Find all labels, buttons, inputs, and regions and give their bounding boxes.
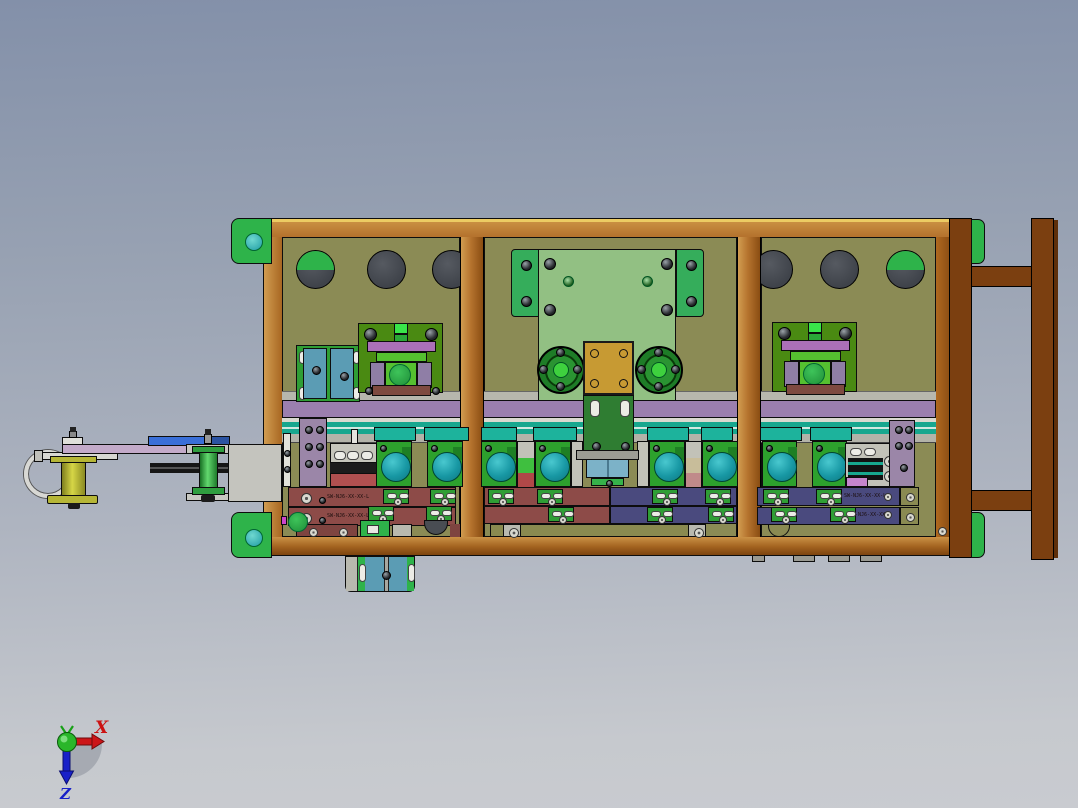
screw: [521, 260, 532, 271]
clamp-indicator-bright: [394, 323, 408, 334]
screw: [782, 516, 790, 524]
mount-square-olive: [900, 487, 919, 506]
panel-hole: [886, 250, 925, 289]
screw: [312, 366, 321, 375]
green-roller-front[interactable]: [288, 512, 308, 532]
screw: [661, 304, 673, 316]
spool-yellow-body[interactable]: [61, 462, 86, 497]
spacer-pink: [686, 473, 701, 488]
actuator-block[interactable]: [845, 443, 894, 487]
screw: [316, 426, 324, 434]
clamp-crossbar-purple[interactable]: [367, 341, 436, 352]
bracket-hole: [245, 529, 263, 547]
latch-handle: [850, 448, 862, 456]
clamp-tee-bar[interactable]: [376, 352, 427, 362]
screw: [485, 445, 492, 452]
screw-plate[interactable]: [537, 489, 563, 504]
roller-bearing: [540, 452, 570, 482]
slot: [408, 564, 415, 582]
screw: [499, 498, 507, 506]
roller-block[interactable]: [535, 441, 571, 487]
spacer-tan: [686, 458, 701, 473]
slot: [620, 400, 630, 417]
edge-strip: [283, 433, 291, 487]
roller-bearing: [432, 452, 462, 482]
screw: [339, 528, 348, 537]
roller-bearing: [381, 452, 411, 482]
screw: [654, 382, 663, 391]
screw: [671, 365, 680, 374]
rod-highlight: [150, 467, 230, 469]
rail-pad: [424, 427, 469, 441]
spacer-gray: [637, 441, 649, 487]
roller-bearing: [817, 452, 847, 482]
screw: [305, 460, 313, 468]
screw-plate[interactable]: [816, 489, 842, 504]
panel-hole: [367, 250, 406, 289]
screw-plate[interactable]: [488, 489, 514, 504]
flange-bearing-right[interactable]: [635, 346, 683, 394]
screw: [573, 365, 582, 374]
spacer-red: [518, 473, 534, 488]
corner-tab-top-right[interactable]: [971, 219, 985, 264]
foot-tab: [752, 556, 765, 562]
screw: [548, 498, 556, 506]
bottom-beam-olive[interactable]: [490, 524, 706, 537]
screw: [284, 450, 291, 457]
screw: [719, 516, 727, 524]
screw: [556, 382, 565, 391]
carriage-cap: [346, 557, 358, 591]
roller-bearing: [767, 452, 797, 482]
screw: [895, 442, 903, 450]
plate-hole: [590, 349, 599, 358]
screw: [284, 466, 291, 473]
rail-pad: [481, 427, 517, 441]
screw: [441, 498, 449, 506]
screw: [340, 372, 349, 381]
spacer-gray: [571, 441, 583, 487]
base-block-maroon: [450, 524, 460, 537]
screw: [686, 260, 697, 271]
purple-mount-block-left[interactable]: [299, 418, 327, 487]
screw: [778, 327, 791, 340]
center-blue-block[interactable]: [586, 459, 629, 478]
screw: [425, 328, 438, 341]
roller-block[interactable]: [376, 441, 412, 487]
center-green-base[interactable]: [591, 478, 624, 486]
sphere-highlight: [61, 736, 68, 743]
roller-block[interactable]: [702, 441, 738, 487]
screw: [316, 443, 324, 451]
spool-nut: [68, 503, 80, 509]
screw: [309, 528, 318, 537]
screw: [900, 464, 908, 472]
screw: [663, 498, 671, 506]
engraved-part-number: SW-NJ6-XX-XX-L: [327, 513, 369, 520]
screw: [884, 511, 892, 519]
screw: [827, 498, 835, 506]
screw: [766, 445, 773, 452]
screw: [305, 443, 313, 451]
screw-plate[interactable]: [426, 506, 452, 521]
arm-screw-cap: [70, 427, 76, 432]
clamp-tee-bar[interactable]: [790, 351, 841, 361]
screw: [301, 493, 312, 504]
stand-post-near[interactable]: [949, 218, 972, 558]
screw-plate[interactable]: [548, 507, 574, 522]
frame-mullion-left[interactable]: [460, 237, 484, 537]
spacer-gray: [686, 442, 701, 458]
latch-red-block: [330, 473, 378, 487]
cad-viewport[interactable]: SW-NJ6-XX-XX-L SW-NJ6-XX-XX-L: [0, 0, 1078, 808]
roller-block[interactable]: [481, 441, 517, 487]
slot: [359, 564, 366, 582]
screw: [319, 517, 326, 524]
bar-hex-end: [34, 450, 43, 462]
spacer-green: [518, 458, 534, 473]
clamp-base-brown[interactable]: [372, 385, 431, 396]
screw-plate[interactable]: [705, 489, 731, 504]
screw: [839, 327, 852, 340]
motor-stripe: [848, 472, 883, 475]
screw: [661, 258, 673, 270]
screw-plate[interactable]: [652, 489, 678, 504]
screw: [431, 445, 438, 452]
plate-window: [367, 525, 379, 534]
roller-bearing: [707, 452, 737, 482]
screw: [539, 365, 548, 374]
screw: [706, 445, 713, 452]
corner-tab-bottom-right[interactable]: [971, 512, 985, 558]
panel-hole: [296, 250, 335, 289]
beam-cap-gray: [688, 524, 706, 537]
screw: [539, 445, 546, 452]
stand-post-far[interactable]: [1031, 218, 1054, 560]
screw-plate[interactable]: [647, 507, 673, 522]
x-axis-label: X: [94, 718, 109, 738]
screw: [365, 387, 373, 395]
spacer-stack: [685, 441, 702, 487]
motor-stripe: [848, 462, 883, 465]
green-spool-flange-bottom: [192, 487, 225, 495]
screw: [556, 348, 565, 357]
green-spool-nut: [201, 495, 215, 502]
arm-screw-shaft: [69, 431, 77, 438]
spacer-stack: [517, 441, 535, 487]
foot-tab: [828, 556, 850, 562]
screw: [716, 498, 724, 506]
screw: [686, 296, 697, 307]
screw: [319, 497, 326, 504]
roller-block[interactable]: [427, 441, 463, 487]
bracket-vertical[interactable]: [228, 444, 282, 502]
triad-origin-sphere: [58, 733, 77, 752]
clamp-crossbar-purple[interactable]: [781, 340, 850, 351]
foot-tab: [860, 556, 882, 562]
screw: [563, 276, 574, 287]
green-part-behind-hole: [887, 251, 924, 270]
screw: [544, 304, 556, 316]
engraved-part-number: SW-NJ6-XX-XX-L: [844, 493, 886, 500]
spool-screw-cap: [205, 429, 211, 435]
latch-handle: [361, 451, 373, 460]
screw: [841, 516, 849, 524]
green-spool-body[interactable]: [199, 452, 218, 489]
rail-pad: [760, 427, 802, 441]
flange-shaft: [553, 362, 569, 378]
stand-post-far-edge: [1054, 220, 1058, 558]
green-part-behind-hole: [297, 251, 334, 270]
screw: [394, 498, 402, 506]
screw: [509, 528, 519, 538]
guide-rod-black[interactable]: [150, 463, 230, 473]
plate-hole: [590, 379, 599, 388]
plate-hole: [619, 379, 628, 388]
base-block-gray: [392, 524, 412, 537]
screw: [895, 426, 903, 434]
screw: [364, 328, 377, 341]
screw: [642, 276, 653, 287]
screw: [305, 426, 313, 434]
screw-plate[interactable]: [383, 489, 409, 504]
clamp-base-brown[interactable]: [786, 384, 845, 395]
base-plate-green[interactable]: [360, 520, 390, 537]
magenta-part: [281, 516, 287, 525]
screw: [658, 516, 666, 524]
side-plate-right[interactable]: [676, 249, 704, 317]
purple-mount-block-right[interactable]: [889, 420, 915, 487]
frame-top-rail-shade: [264, 222, 954, 236]
foot-tab: [793, 556, 815, 562]
screw: [906, 493, 915, 502]
engraved-part-number: SW-NJ6-XX-XX-L: [327, 494, 369, 501]
screw: [938, 527, 947, 536]
latch-handle: [864, 448, 876, 456]
roller-bearing: [654, 452, 684, 482]
screw: [521, 296, 532, 307]
rail-pad: [374, 427, 416, 441]
violet-pad: [846, 477, 868, 487]
screw: [694, 528, 704, 538]
rail-carriage-bottom[interactable]: [345, 556, 415, 592]
panel-hole: [820, 250, 859, 289]
screw: [816, 445, 823, 452]
screw: [884, 493, 892, 501]
rail-pad: [810, 427, 852, 441]
screw: [382, 571, 391, 580]
screw: [380, 445, 387, 452]
flange-shaft: [651, 362, 667, 378]
screw: [559, 516, 567, 524]
stand-beam-bottom[interactable]: [971, 490, 1032, 511]
screw-plate[interactable]: [430, 489, 456, 504]
screw: [774, 498, 782, 506]
screw-plate[interactable]: [368, 506, 394, 521]
screw: [906, 513, 915, 522]
screw-plate[interactable]: [763, 489, 789, 504]
z-axis-label: Z: [59, 785, 72, 803]
screw-plate[interactable]: [771, 507, 797, 522]
screw: [606, 480, 613, 487]
screw: [432, 387, 440, 395]
mount-square-olive: [900, 507, 919, 525]
bracket-hole: [245, 233, 263, 251]
roller-block[interactable]: [649, 441, 685, 487]
flange-bearing-left[interactable]: [537, 346, 585, 394]
screw: [544, 258, 556, 270]
corner-bracket-bottom-left[interactable]: [231, 512, 272, 558]
clamp-roller-green[interactable]: [389, 364, 411, 386]
roller-bearing: [486, 452, 516, 482]
screw: [653, 445, 660, 452]
slot: [590, 400, 600, 417]
rail-pad: [701, 427, 733, 441]
screw: [316, 460, 324, 468]
side-plate-left[interactable]: [511, 249, 539, 317]
roller-block[interactable]: [762, 441, 797, 487]
latch-handle: [347, 451, 359, 460]
latch-handle: [334, 451, 346, 460]
stand-beam-top[interactable]: [971, 266, 1032, 287]
rail-pad: [647, 427, 689, 441]
spacer-gray: [518, 442, 534, 458]
rail-pad: [533, 427, 577, 441]
screw: [637, 365, 646, 374]
frame-bottom-rail[interactable]: [264, 537, 954, 555]
block-seam: [607, 460, 609, 477]
clamp-indicator-bright: [808, 322, 822, 333]
clamp-roller-green[interactable]: [803, 363, 825, 385]
spool-screw-shaft: [204, 434, 212, 444]
latch-dark-band: [330, 463, 378, 473]
beam-cap-gray: [503, 524, 521, 537]
screw: [905, 442, 913, 450]
screw-plate[interactable]: [708, 507, 734, 522]
screw: [654, 348, 663, 357]
screw-plate[interactable]: [830, 507, 856, 522]
gold-cylinder-plate[interactable]: [583, 341, 634, 395]
orientation-triad: X Z: [38, 714, 178, 806]
latch-block[interactable]: [330, 443, 378, 463]
roller-block[interactable]: [812, 441, 847, 487]
corner-bracket-top-left[interactable]: [231, 218, 272, 264]
plate-hole: [619, 349, 628, 358]
screw: [905, 426, 913, 434]
center-column-green[interactable]: [583, 395, 634, 452]
clamp-bar-maroon[interactable]: [484, 506, 610, 524]
